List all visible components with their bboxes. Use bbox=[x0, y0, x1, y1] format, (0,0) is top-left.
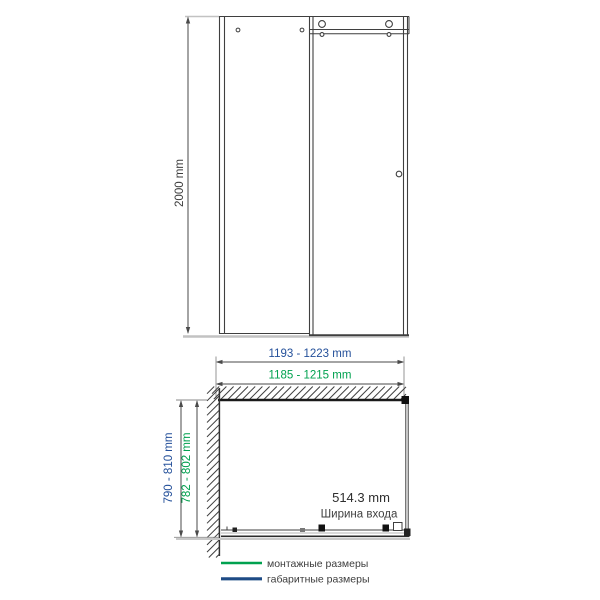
mounting-width-label: 1185 - 1215 mm bbox=[269, 370, 352, 382]
height-dimension-label: 2000 mm bbox=[174, 159, 186, 207]
panel-junction-icon bbox=[300, 528, 305, 532]
arrow-right-icon bbox=[398, 382, 405, 386]
arrow-up-icon bbox=[186, 17, 190, 24]
sliding-door-panel bbox=[309, 17, 409, 336]
diagram-svg: 2000 mm 1193 - 1223 mm 1185 - 1215 mm bbox=[0, 0, 600, 600]
wall-hatch-left bbox=[207, 387, 219, 558]
shower-enclosure-dimension-diagram: 2000 mm 1193 - 1223 mm 1185 - 1215 mm bbox=[0, 0, 600, 600]
roller-screw-left-icon bbox=[320, 33, 324, 37]
side-glass-panel bbox=[406, 400, 408, 537]
arrow-up-icon bbox=[195, 400, 199, 407]
mounting-depth-label: 782 - 802 mm bbox=[181, 433, 193, 504]
roller-screw-right-icon bbox=[387, 33, 391, 37]
arrow-right-icon bbox=[398, 360, 405, 364]
mounting-width-dimension: 1185 - 1215 mm bbox=[216, 370, 405, 387]
arrow-up-icon bbox=[179, 400, 183, 407]
door-roller-bottom-right-icon bbox=[383, 525, 390, 532]
wall-hatch-top bbox=[212, 387, 406, 400]
roller-right-icon bbox=[386, 21, 393, 28]
wall-profile-bracket bbox=[402, 396, 410, 404]
overall-width-label: 1193 - 1223 mm bbox=[269, 348, 352, 360]
corner-bracket-icon bbox=[404, 529, 411, 537]
door-knob-icon bbox=[394, 523, 403, 531]
arrow-down-icon bbox=[186, 327, 190, 334]
legend-item-overall: габаритные размеры bbox=[221, 574, 370, 586]
plan-view: 1193 - 1223 mm 1185 - 1215 mm bbox=[163, 348, 411, 558]
legend-overall-label: габаритные размеры bbox=[267, 574, 370, 586]
fixed-panel-holes bbox=[236, 28, 304, 32]
legend-mounting-label: монтажные размеры bbox=[267, 558, 368, 570]
arrow-down-icon bbox=[195, 531, 199, 538]
elevation-witness-lines bbox=[183, 17, 409, 337]
arrow-left-icon bbox=[216, 382, 223, 386]
roller-left-icon bbox=[319, 21, 326, 28]
mounting-depth-dimension: 782 - 802 mm bbox=[181, 400, 199, 538]
legend-item-mounting: монтажные размеры bbox=[221, 558, 368, 570]
arrow-left-icon bbox=[216, 360, 223, 364]
overall-width-dimension: 1193 - 1223 mm bbox=[216, 348, 405, 364]
entrance-width-caption: Ширина входа bbox=[321, 509, 398, 521]
elevation-outline bbox=[219, 17, 409, 335]
plan-walls bbox=[218, 388, 409, 556]
entrance-width-note: 514.3 mm Ширина входа bbox=[321, 490, 398, 521]
door-handle-icon bbox=[396, 171, 402, 177]
door-roller-bottom-left-icon bbox=[319, 525, 326, 532]
arrow-down-icon bbox=[179, 531, 183, 538]
track-bracket-icon bbox=[233, 528, 238, 533]
height-dimension: 2000 mm bbox=[174, 17, 190, 335]
entrance-width-value: 514.3 mm bbox=[332, 490, 390, 505]
legend: монтажные размеры габаритные размеры bbox=[221, 558, 370, 586]
overall-depth-label: 790 - 810 mm bbox=[163, 433, 175, 504]
bottom-track bbox=[176, 523, 411, 540]
front-elevation-view: 2000 mm bbox=[174, 17, 409, 337]
